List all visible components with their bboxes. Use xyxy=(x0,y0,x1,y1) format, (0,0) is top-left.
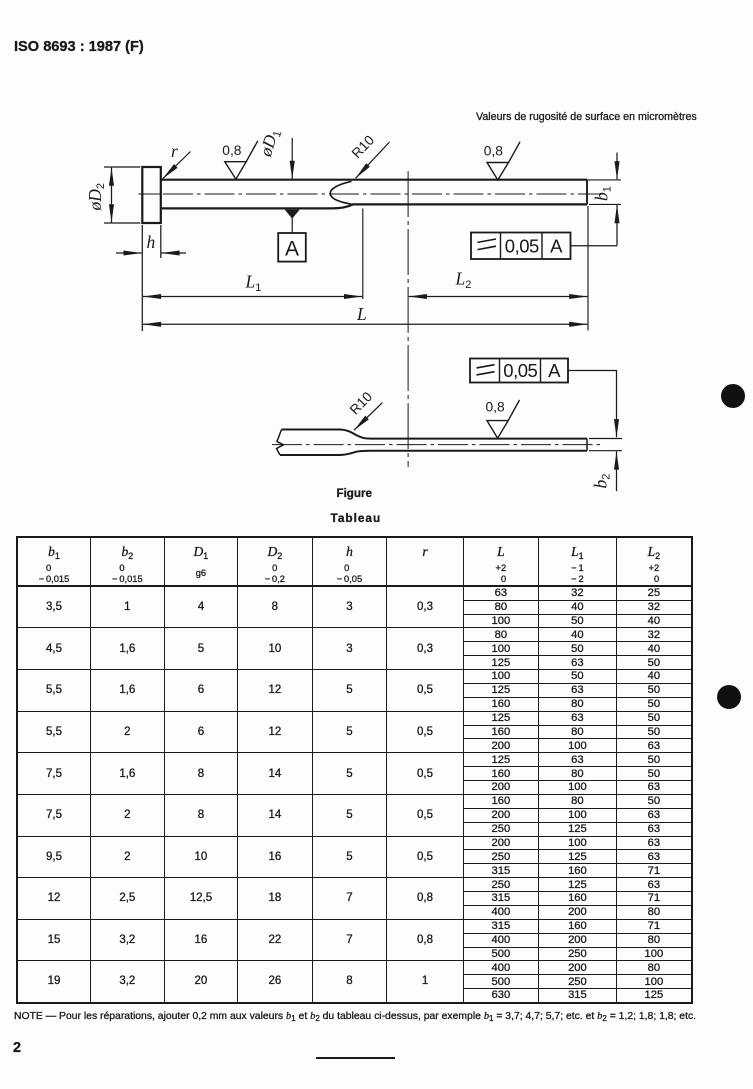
svg-text:0,05: 0,05 xyxy=(503,360,537,381)
svg-text:øD1: øD1 xyxy=(255,127,284,161)
svg-text:R10: R10 xyxy=(349,132,378,161)
svg-text:A: A xyxy=(550,236,563,257)
svg-text:L1: L1 xyxy=(245,272,262,295)
svg-text:0,8: 0,8 xyxy=(484,144,504,159)
svg-text:L: L xyxy=(356,304,367,324)
svg-text:b1: b1 xyxy=(592,186,614,201)
svg-text:b2: b2 xyxy=(591,474,613,489)
svg-text:øD2: øD2 xyxy=(85,183,107,212)
svg-text:0,8: 0,8 xyxy=(486,400,506,415)
svg-text:L2: L2 xyxy=(455,269,472,292)
svg-text:r: r xyxy=(171,141,178,161)
svg-text:0,05: 0,05 xyxy=(505,236,539,257)
svg-text:A: A xyxy=(548,360,561,381)
svg-text:0,8: 0,8 xyxy=(222,143,242,158)
svg-text:A: A xyxy=(285,238,299,261)
svg-text:h: h xyxy=(147,232,156,252)
